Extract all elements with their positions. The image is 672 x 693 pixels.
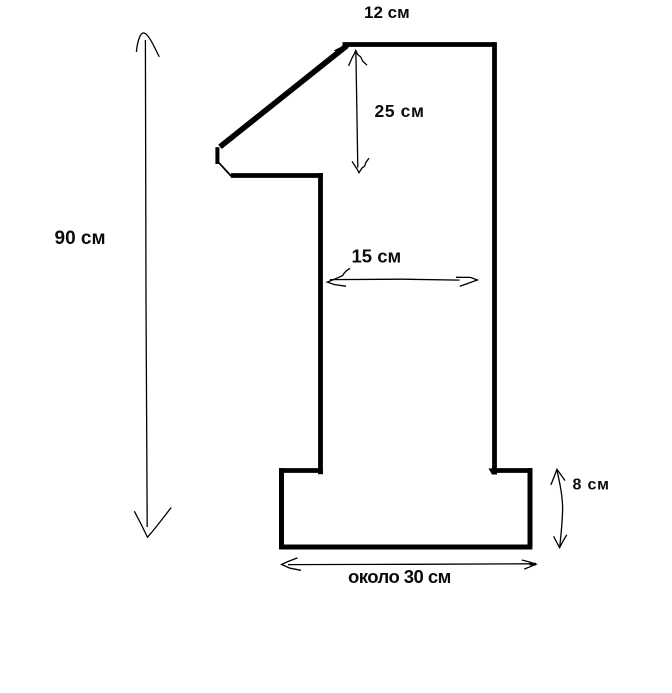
svg-text:90 см: 90 см [55,228,106,249]
svg-text:около 30 см: около 30 см [348,566,451,587]
svg-text:15 см: 15 см [352,245,402,266]
svg-text:25 см: 25 см [375,101,425,121]
svg-text:8 см: 8 см [573,476,610,493]
svg-text:12 см: 12 см [364,3,410,22]
